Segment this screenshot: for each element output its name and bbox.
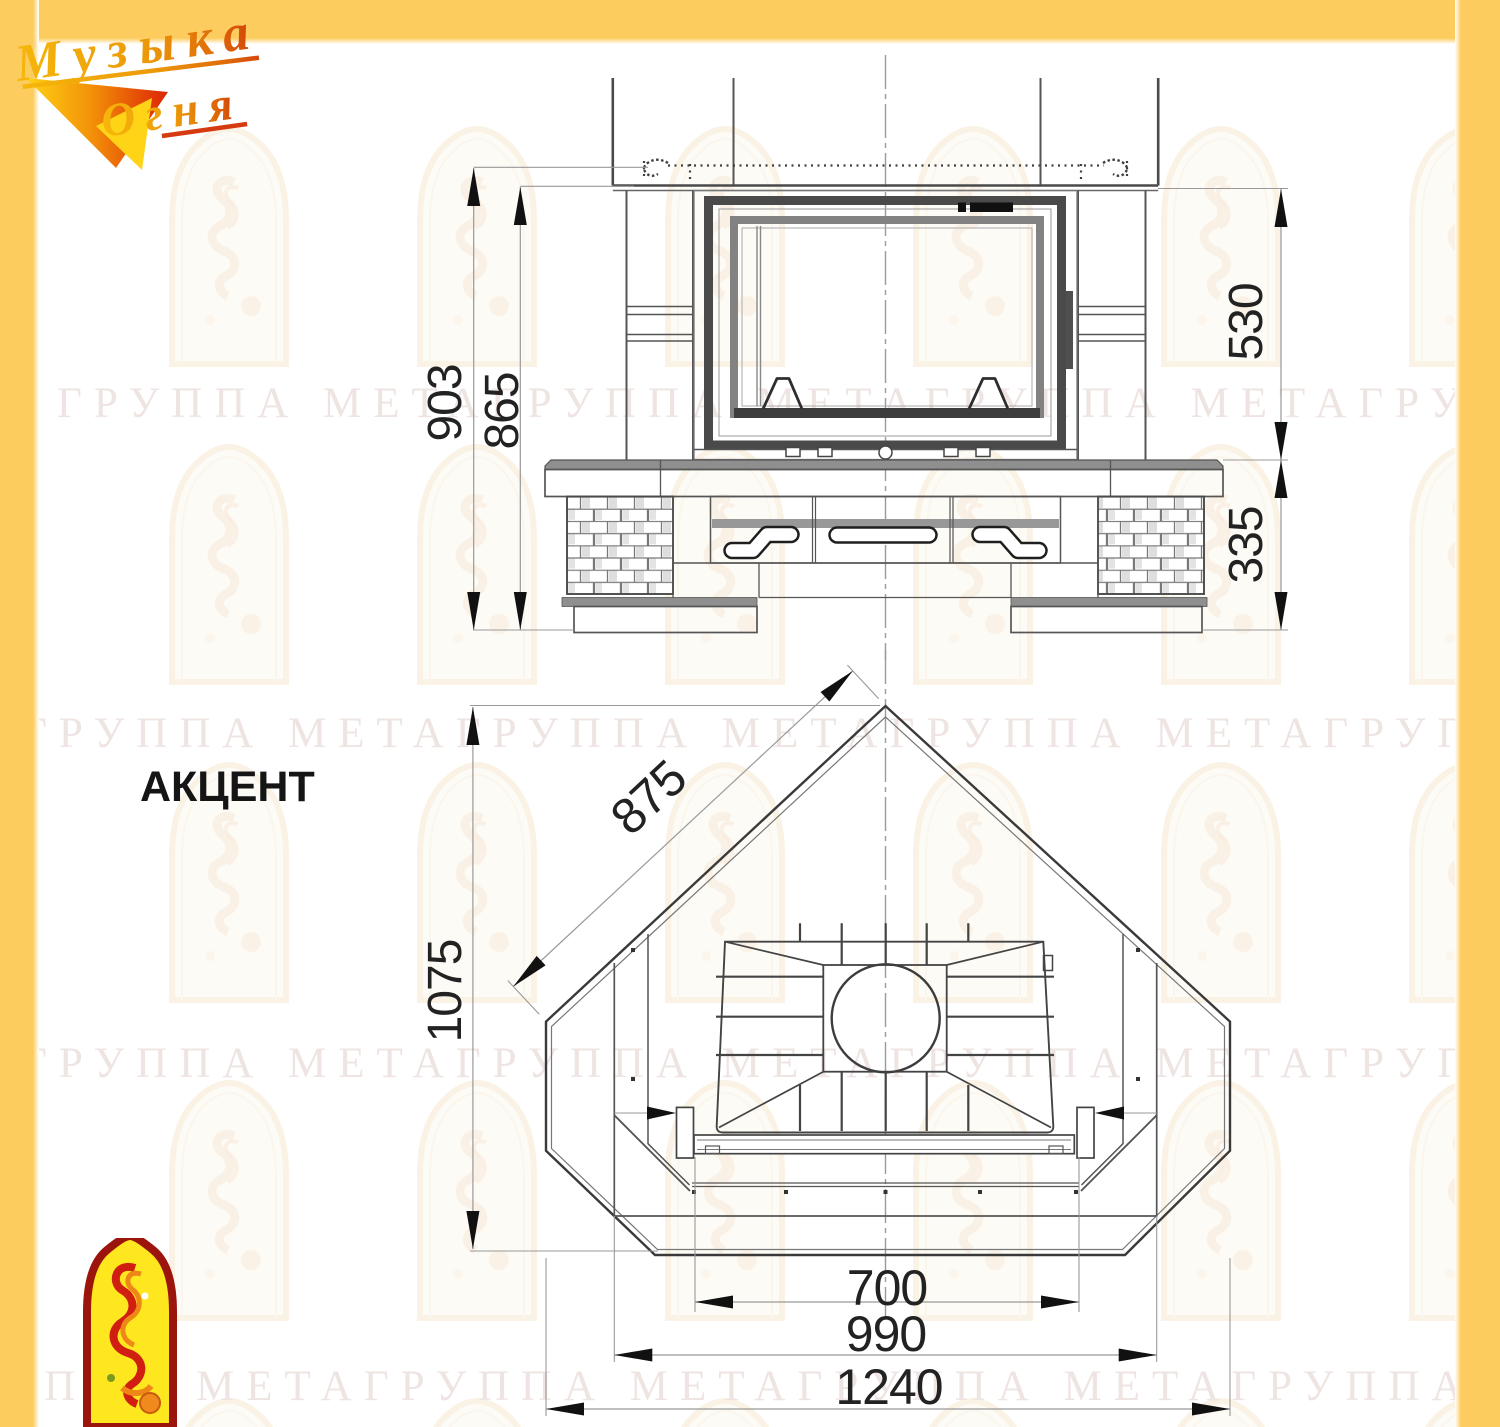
svg-text:1075: 1075 (419, 940, 472, 1043)
svg-text:1240: 1240 (835, 1359, 942, 1415)
svg-text:990: 990 (846, 1306, 926, 1362)
svg-text:530: 530 (1220, 283, 1273, 360)
svg-text:335: 335 (1220, 506, 1273, 583)
svg-text:865: 865 (476, 372, 529, 449)
svg-text:903: 903 (419, 364, 472, 441)
svg-text:875: 875 (600, 750, 697, 846)
